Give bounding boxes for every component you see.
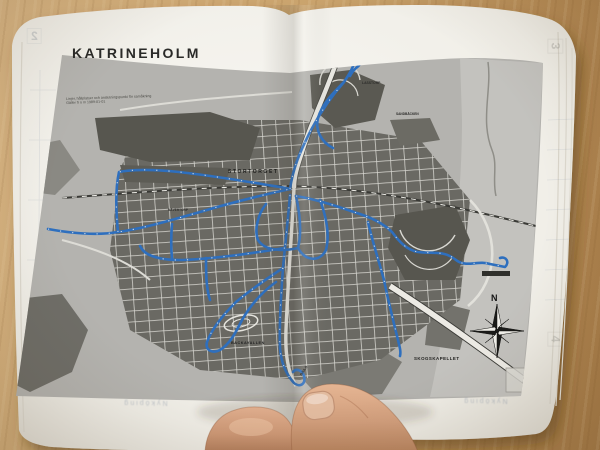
hand-layer: [0, 0, 600, 450]
thumbnail: [301, 390, 335, 421]
photo-scene: KATRINEHOLM Linjer, hållplatser och ansl…: [0, 0, 600, 450]
